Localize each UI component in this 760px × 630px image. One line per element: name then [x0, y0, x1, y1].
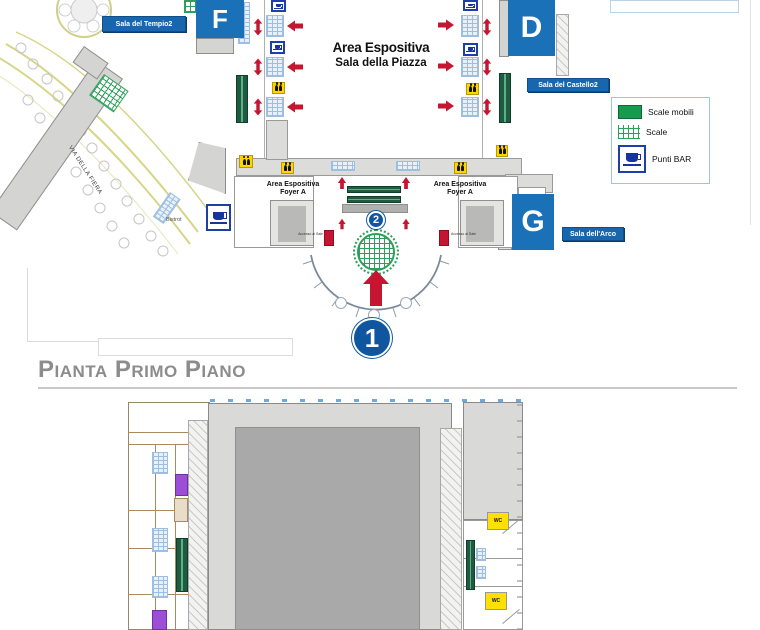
wc-icon [272, 82, 285, 94]
bar-point-icon [270, 41, 285, 54]
access-block [439, 230, 449, 246]
stairs-strip [461, 97, 479, 117]
floorplan-page: VIA DELLA FIERA F D G Sala del Tempio2 S… [0, 0, 760, 630]
foyer-label-line: Foyer A [258, 189, 328, 197]
wc-icon [466, 83, 479, 95]
hall-d-box: D [508, 0, 555, 56]
stairs-swatch-icon [618, 125, 640, 139]
foyer-label-line: Area Espositiva [258, 181, 328, 189]
bar-cup-icon [618, 145, 646, 173]
legend-item-escalators: Scale mobili [618, 105, 703, 119]
bar-point-icon [463, 43, 478, 56]
hall-f-label: F [212, 4, 228, 35]
stairs-strip [396, 161, 420, 171]
stairs-strip [152, 452, 168, 474]
stairs-strip [461, 57, 479, 77]
wing-wall [175, 444, 176, 630]
hall-wall [482, 0, 483, 158]
hall-g-box: G [512, 194, 554, 250]
hall-edge-walkway [440, 428, 462, 630]
map-frame-box [98, 338, 293, 356]
marker-2: 2 [367, 211, 385, 229]
wing-edge-ticks [517, 402, 522, 630]
bistrot-building [188, 142, 226, 194]
legend-label: Scale mobili [648, 107, 694, 117]
circular-stairs [357, 233, 395, 271]
wc-room: WC [487, 512, 509, 530]
bar-point-icon [271, 0, 286, 12]
marker-1: 1 [352, 318, 392, 358]
building-strip [196, 38, 234, 54]
escalator-bar [347, 186, 401, 193]
hall-d-label: D [521, 11, 543, 45]
ground-floor-map: VIA DELLA FIERA F D G Sala del Tempio2 S… [0, 0, 760, 345]
legend-box: Scale mobili Scale Punti BAR [611, 97, 710, 184]
access-label: Accesso ai Sale [451, 233, 478, 237]
wc-room: WC [485, 592, 507, 610]
map-frame-line [27, 341, 99, 342]
escalator-bar [499, 73, 511, 123]
stairs-strip [331, 161, 355, 171]
escalator-bar [466, 540, 475, 590]
hall-center-label: Area Espositiva Sala della Piazza [316, 40, 446, 69]
corridor-wall [266, 120, 288, 160]
building-strip [556, 14, 569, 76]
access-label: Accesso ai Sale [296, 233, 323, 237]
wc-icon [454, 162, 467, 174]
stairs-strip [461, 15, 479, 37]
foyer-a-left-label: Area Espositiva Foyer A [258, 181, 328, 198]
map-frame-line [750, 0, 751, 225]
hall-window-ticks [210, 399, 522, 402]
escalator-bar [347, 196, 401, 203]
wc-icon [239, 155, 253, 168]
street-label: VIA DELLA FIERA [67, 145, 103, 196]
hall-edge-walkway [188, 420, 208, 630]
escalator-swatch-icon [618, 105, 642, 119]
access-block [324, 230, 334, 246]
hall-floor [235, 427, 420, 630]
legend-item-bar: Punti BAR [618, 145, 703, 173]
foyer-corridor [236, 158, 522, 176]
badge-label: Sala dell'Arco [570, 231, 616, 238]
badge-label: Sala del Castello2 [538, 82, 598, 89]
title-rule [38, 387, 737, 389]
service-room [152, 610, 167, 630]
escalator-bar [176, 538, 188, 592]
badge-sala-del-tempio2: Sala del Tempio2 [102, 16, 186, 32]
legend-label: Scale [646, 127, 667, 137]
badge-sala-dell-arco: Sala dell'Arco [562, 227, 624, 241]
wc-icon [281, 162, 294, 174]
wc-icon [496, 145, 508, 157]
marker-1-label: 1 [365, 323, 379, 354]
area-espositiva-label: Area Espositiva [316, 40, 446, 55]
bar-point-icon [463, 0, 478, 11]
service-room [174, 498, 188, 522]
badge-sala-del-castello2: Sala del Castello2 [527, 78, 609, 92]
stairs-strip [266, 15, 284, 37]
map-frame-box [610, 0, 739, 13]
stairs-strip [266, 57, 284, 77]
foyer-label-line: Area Espositiva [425, 181, 495, 189]
service-room [175, 474, 188, 496]
hall-g-label: G [521, 205, 544, 239]
bistrot-label: Bistrot [166, 217, 182, 223]
stairs-strip [266, 97, 284, 117]
east-wing-upper [463, 402, 523, 520]
foyer-label-line: Foyer A [425, 189, 495, 197]
badge-label: Sala del Tempio2 [116, 21, 173, 28]
bistrot-bar-icon [206, 204, 231, 231]
wc-room-label: WC [494, 518, 502, 524]
legend-label: Punti BAR [652, 154, 691, 164]
hall-f-box: F [196, 0, 244, 38]
stairs-strip [476, 566, 486, 579]
stairs-strip [152, 576, 168, 598]
marker-2-label: 2 [373, 214, 379, 226]
section-title: Pianta Primo Piano [38, 356, 246, 384]
legend-item-stairs: Scale [618, 125, 703, 139]
first-floor-map: WC WC [0, 398, 760, 630]
map-frame-line [27, 268, 28, 342]
entrance-arrow-icon [363, 270, 389, 306]
sala-della-piazza-label: Sala della Piazza [316, 57, 446, 69]
stairs-strip [152, 528, 168, 552]
wc-room-label: WC [492, 598, 500, 604]
foyer-a-right-label: Area Espositiva Foyer A [425, 181, 495, 198]
escalator-bar [236, 75, 248, 123]
hall-wall [264, 0, 265, 158]
stairs-strip [476, 548, 486, 561]
